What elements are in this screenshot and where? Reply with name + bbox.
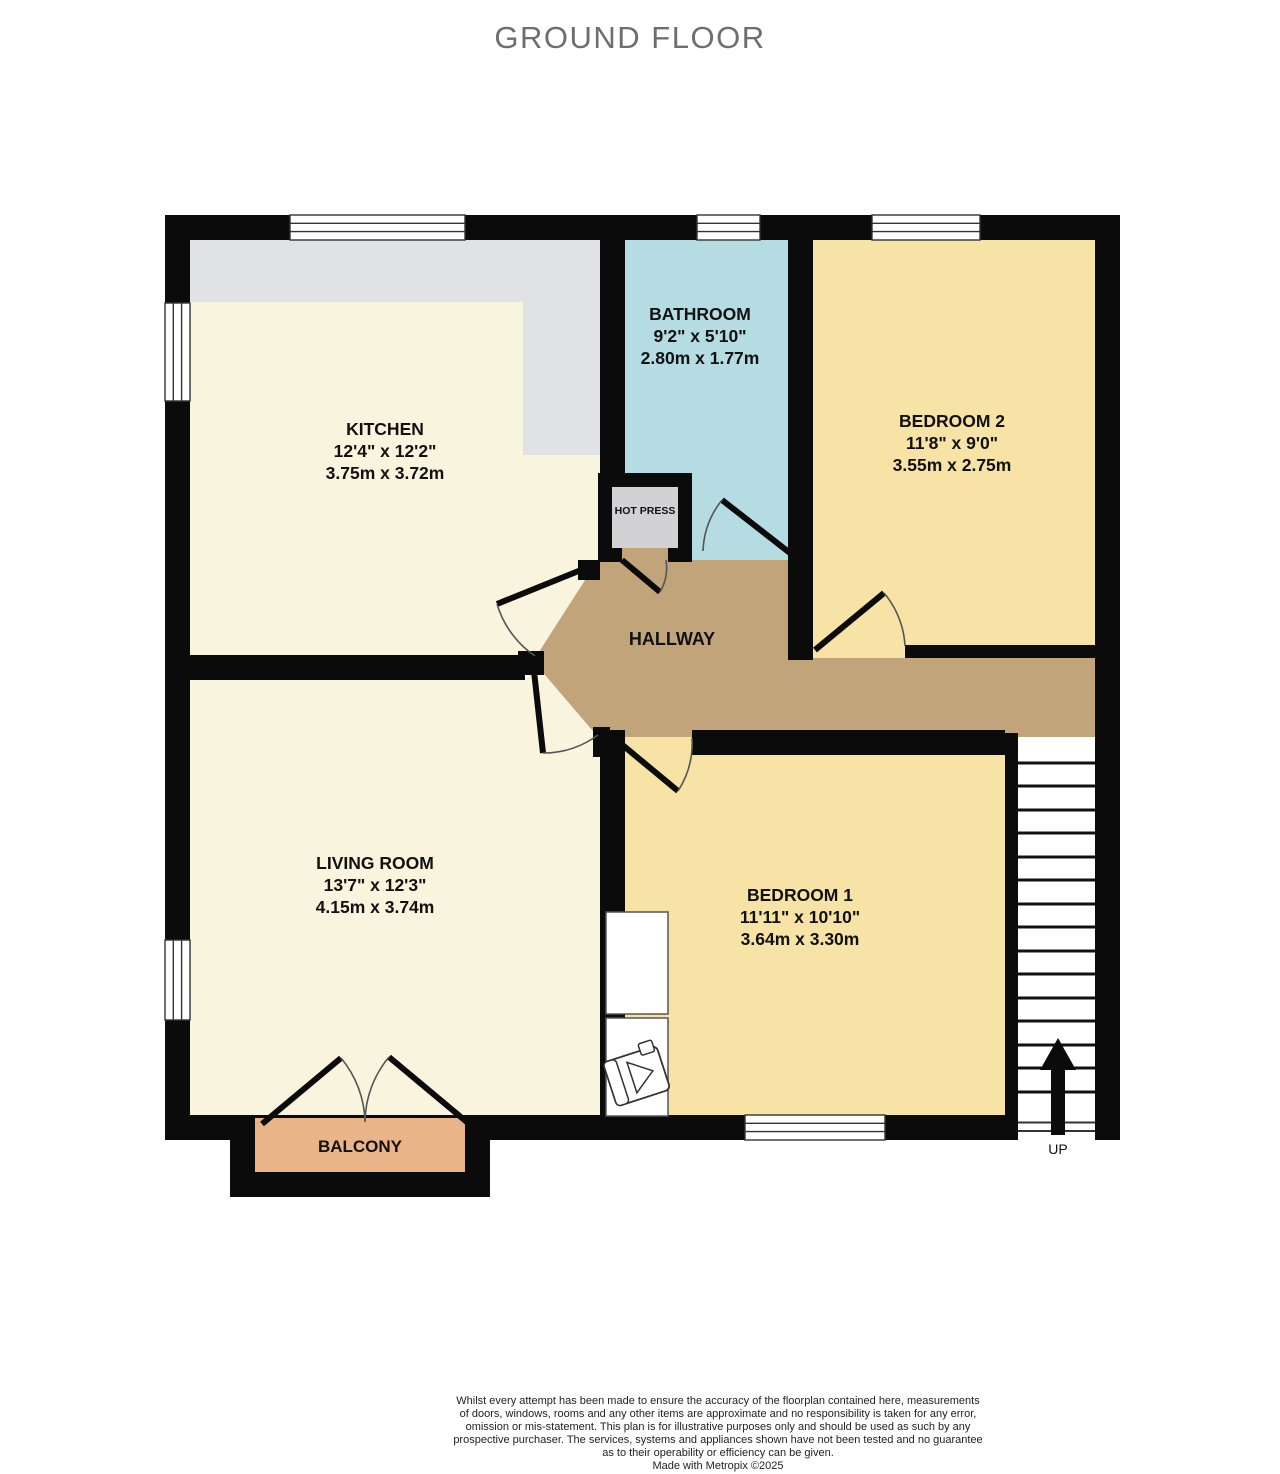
hot-press-label: HOT PRESS [615, 505, 676, 517]
disclaimer-line: omission or mis-statement. This plan is … [398, 1421, 1038, 1434]
disclaimer-line: of doors, windows, rooms and any other i… [398, 1408, 1038, 1421]
wall-bedroom1-top [692, 730, 1005, 755]
floor-plan-page: GROUND FLOOR [0, 0, 1280, 1474]
bedroom1-name: BEDROOM 1 [740, 884, 860, 906]
disclaimer-line: prospective purchaser. The services, sys… [398, 1434, 1038, 1447]
disclaimer: Whilst every attempt has been made to en… [398, 1395, 1038, 1473]
hot-press-structure [598, 473, 692, 562]
hot-press-floor [612, 487, 678, 548]
living-room-label: LIVING ROOM 13'7" x 12'3" 4.15m x 3.74m [316, 852, 435, 918]
kitchen-counter-right [523, 240, 600, 455]
bedroom2-name: BEDROOM 2 [893, 410, 1012, 432]
wall-right [1095, 215, 1120, 1140]
wall-kitchen-living [165, 655, 525, 680]
wall-stairs-divider [1005, 733, 1018, 1115]
disclaimer-line: as to their operability or efficiency ca… [398, 1447, 1038, 1460]
floorplan-drawing [0, 0, 1280, 1474]
living-room-metric: 4.15m x 3.74m [316, 896, 435, 918]
bedroom2-label: BEDROOM 2 11'8" x 9'0" 3.55m x 2.75m [893, 410, 1012, 476]
bedroom2-imperial: 11'8" x 9'0" [893, 432, 1012, 454]
wardrobe-upper [606, 912, 668, 1014]
bedroom1-label: BEDROOM 1 11'11" x 10'10" 3.64m x 3.30m [740, 884, 860, 950]
living-room-imperial: 13'7" x 12'3" [316, 874, 435, 896]
window-living-left [165, 940, 190, 1020]
bathroom-imperial: 9'2" x 5'10" [641, 325, 760, 347]
window-bedroom1-bottom [745, 1115, 885, 1140]
kitchen-metric: 3.75m x 3.72m [326, 462, 445, 484]
bathroom-name: BATHROOM [641, 303, 760, 325]
hot-press-door-opening [622, 548, 668, 562]
wall-bedroom2-bottom [905, 645, 1095, 658]
window-kitchen-left [165, 303, 190, 401]
hallway-label: HALLWAY [629, 629, 715, 650]
bathroom-label: BATHROOM 9'2" x 5'10" 2.80m x 1.77m [641, 303, 760, 369]
bedroom1-imperial: 11'11" x 10'10" [740, 906, 860, 928]
kitchen-imperial: 12'4" x 12'2" [326, 440, 445, 462]
bedroom1-metric: 3.64m x 3.30m [740, 928, 860, 950]
bedroom1-furniture [601, 912, 671, 1116]
window-bathroom-top [697, 215, 760, 240]
bathroom-metric: 2.80m x 1.77m [641, 347, 760, 369]
kitchen-name: KITCHEN [326, 418, 445, 440]
living-room-name: LIVING ROOM [316, 852, 435, 874]
kitchen-label: KITCHEN 12'4" x 12'2" 3.75m x 3.72m [326, 418, 445, 484]
wall-bathroom-bedroom2 [788, 240, 813, 660]
stairs [1018, 737, 1095, 1140]
made-with-credit: Made with Metropix ©2025 [398, 1460, 1038, 1473]
balcony-wall-bottom [230, 1172, 490, 1197]
stairs-up-label: UP [1048, 1141, 1067, 1157]
bedroom2-metric: 3.55m x 2.75m [893, 454, 1012, 476]
wall-kitchen-bathroom [600, 240, 625, 475]
window-kitchen-top [290, 215, 465, 240]
balcony-label: BALCONY [318, 1137, 402, 1157]
disclaimer-line: Whilst every attempt has been made to en… [398, 1395, 1038, 1408]
window-bedroom2-top [872, 215, 980, 240]
